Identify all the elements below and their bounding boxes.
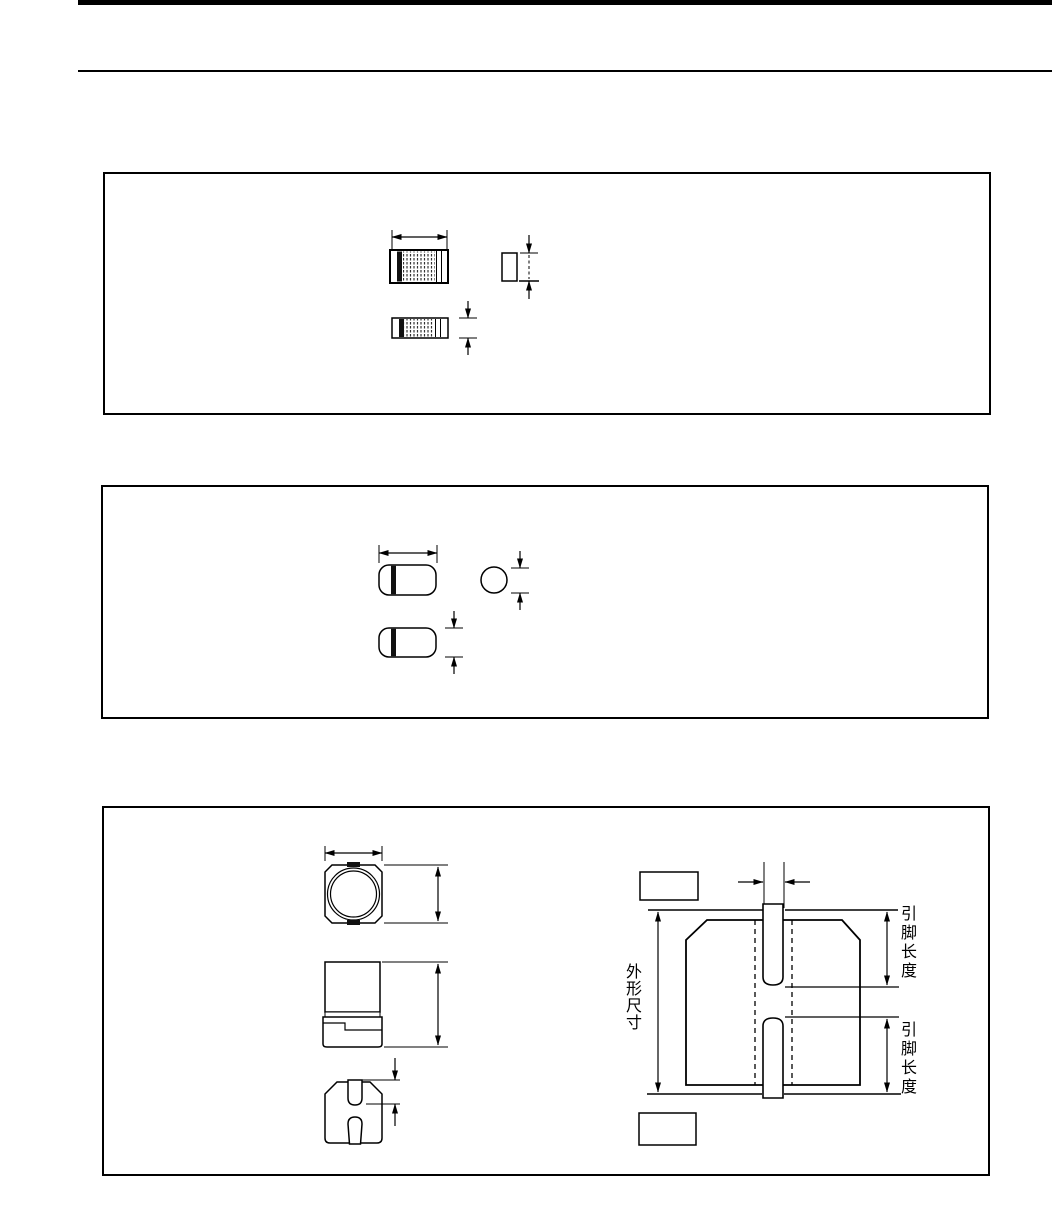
land-pattern-diagram (639, 862, 901, 1145)
outline-dimension-label: 外形尺寸 (624, 964, 644, 1032)
capacitor-side-view (323, 962, 382, 1047)
chip-length-dimension (392, 230, 447, 250)
top-pad (640, 872, 698, 900)
melf-component-drawing (103, 487, 987, 717)
capacitor-width-dimension (325, 846, 382, 861)
chip-thickness-dimension (459, 301, 477, 355)
chip-end-view (502, 253, 517, 281)
capacitor-bottom-view (325, 1080, 382, 1144)
chip-top-view (390, 250, 448, 283)
chip-component-drawing (105, 174, 989, 413)
figure-box-chip-component (103, 172, 991, 415)
capacitor-depth-dimension (384, 865, 448, 923)
bottom-pad (639, 1113, 696, 1145)
melf-length-dimension (379, 545, 437, 563)
figure-box-melf-component (101, 485, 989, 719)
upper-lead (763, 904, 783, 985)
melf-top-view (379, 565, 436, 595)
melf-end-view (481, 567, 507, 593)
chip-side-view (392, 318, 448, 338)
melf-diameter-dimension (511, 551, 529, 610)
capacitor-height-dimension (382, 962, 448, 1047)
document-page: 外形尺寸 引脚长度 引脚长度 (0, 0, 1052, 1213)
header-rule (78, 70, 1052, 72)
figure-box-electrolytic-capacitor (102, 806, 990, 1176)
melf-height-dimension (445, 611, 463, 674)
capacitor-drawing (104, 808, 988, 1174)
top-rule (78, 0, 1052, 5)
lead-length-bottom-label: 引脚长度 (899, 1021, 919, 1097)
capacitor-top-view (325, 862, 382, 925)
lead-width-dimension (738, 862, 810, 908)
lead-length-top-label: 引脚长度 (899, 905, 919, 981)
melf-side-view (379, 628, 436, 657)
lower-lead (763, 1018, 783, 1098)
chip-height-dimension (519, 235, 539, 299)
